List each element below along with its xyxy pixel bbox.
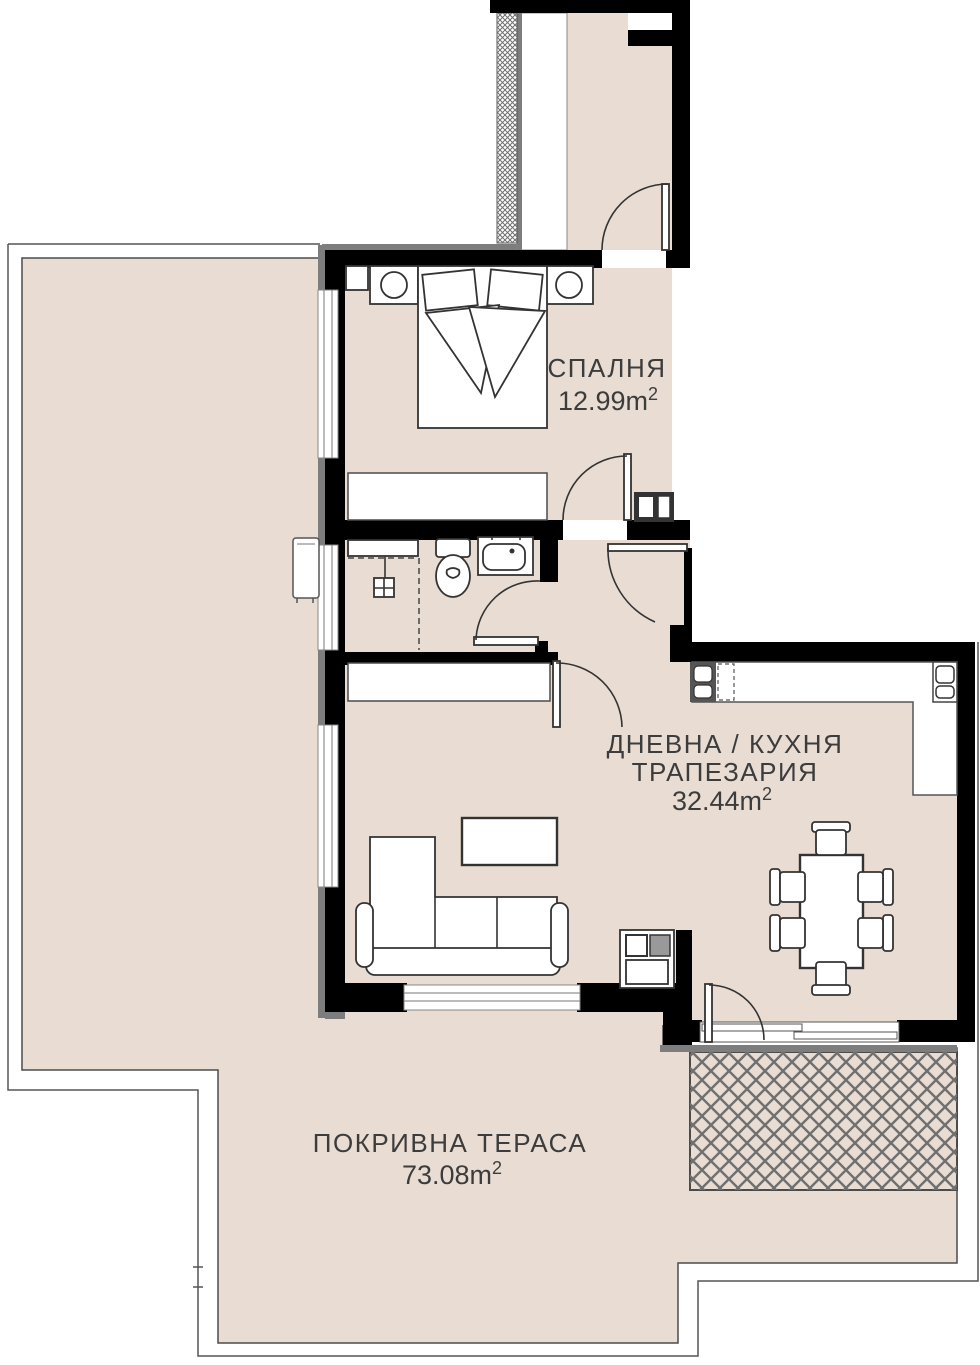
shaft (517, 13, 567, 250)
living-name-line1: ДНЕВНА / КУХНЯ (607, 729, 844, 759)
chair-right-2 (858, 915, 893, 951)
living-area: 32.44m (672, 786, 762, 816)
sliding-terrace-door (700, 1022, 899, 1042)
window-living-west (318, 725, 338, 887)
nightstand-left (370, 266, 418, 304)
floor-plan: СПАЛНЯ 12.99m2 ДНЕВНА / КУХНЯ ТРАПЕЗАРИЯ… (0, 0, 980, 1365)
hall-cabinet (634, 492, 674, 522)
nightstand-right (545, 266, 593, 304)
window-bedroom-west (318, 290, 338, 458)
chair-top (812, 822, 850, 855)
cooktop-icon (933, 662, 957, 702)
chair-left-1 (770, 869, 805, 905)
chair-bottom (812, 962, 850, 995)
chair-right-1 (858, 869, 893, 905)
stove-oven-unit (620, 930, 674, 988)
chair-left-2 (770, 915, 805, 951)
living-area-sup: 2 (762, 784, 772, 804)
insulation-hatch-strip (497, 13, 517, 243)
living-wardrobe (348, 663, 550, 701)
bedroom-area-sup: 2 (648, 384, 658, 404)
toilet-icon (436, 539, 470, 597)
bedroom-wardrobe (348, 473, 547, 520)
terrace-area-sup: 2 (492, 1158, 502, 1178)
entry-door-opening (628, 13, 672, 32)
living-name-line2: ТРАПЕЗАРИЯ (632, 757, 819, 787)
entry-hall-floor (567, 13, 672, 250)
window-living-south (404, 985, 580, 1010)
svg-text:12.99m2: 12.99m2 (558, 384, 658, 416)
window-bathroom-west (318, 545, 338, 650)
terrace-name: ПОКРИВНА ТЕРАСА (313, 1128, 587, 1158)
coffee-table (462, 818, 557, 865)
ac-unit-icon (293, 538, 319, 603)
sink-icon (478, 537, 533, 575)
kitchen-sink-icon (690, 662, 716, 702)
terrace-pergola-hatch (690, 1052, 957, 1190)
bedroom-area: 12.99m (558, 386, 648, 416)
bed-icon (418, 266, 547, 428)
wall-switch-box (346, 266, 368, 290)
terrace-area: 73.08m (402, 1160, 492, 1190)
bedroom-name: СПАЛНЯ (548, 353, 667, 383)
svg-text:73.08m2: 73.08m2 (402, 1158, 502, 1190)
svg-text:32.44m2: 32.44m2 (672, 784, 772, 816)
